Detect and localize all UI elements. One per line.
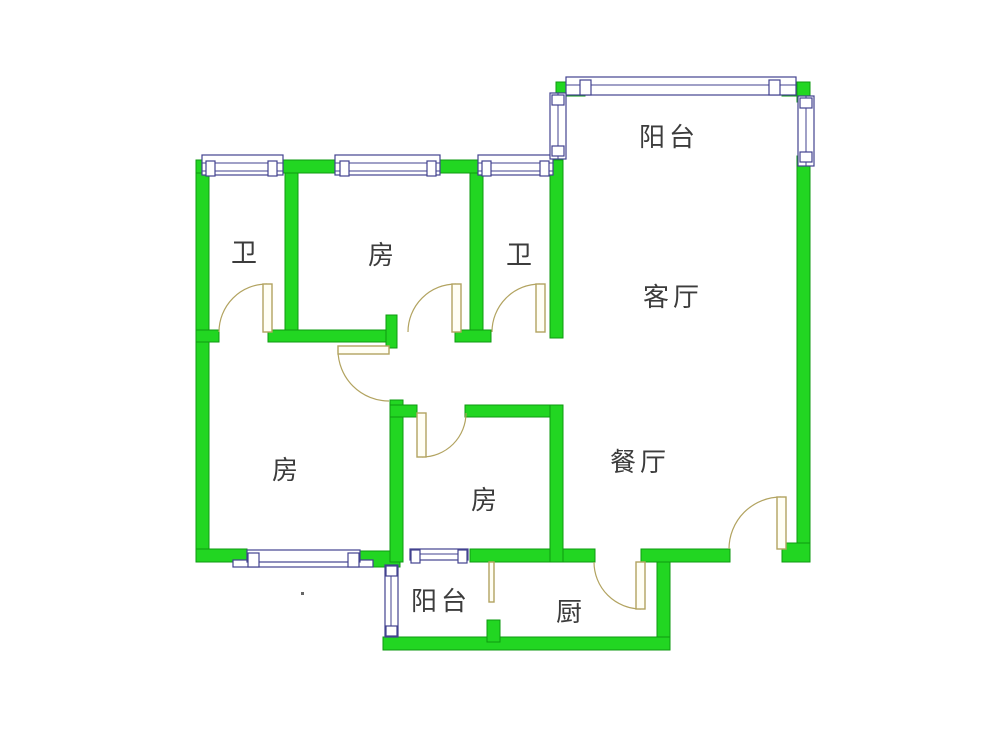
wall-midroom-right (550, 405, 563, 562)
wall-hall-segment-b (268, 330, 397, 342)
window-bottom-balcony-cap-bottom (386, 626, 397, 636)
wall-hall-end-cap (386, 315, 397, 348)
wall-right-outer (797, 156, 810, 549)
door-dining-arc (729, 497, 781, 549)
window-midroom-balcony-cap-left (411, 550, 420, 563)
window-balcony-top-cap-left (580, 80, 591, 95)
floor-plan-drawing: 卫 房 卫 阳台 客厅 房 房 餐厅 阳台 厨 (0, 0, 1000, 731)
door-bedroom-left-leaf (338, 346, 389, 354)
door-dining-leaf (777, 497, 786, 549)
wall-hall-segment-a (196, 330, 219, 342)
room-label-bedroom-top: 房 (368, 241, 394, 271)
room-label-bath-1: 卫 (231, 239, 257, 269)
window-balcony-right-cap-bottom (800, 152, 812, 162)
window-balcony-left-cap-bottom (552, 146, 564, 156)
door-bedroom-middle-leaf (417, 413, 426, 457)
window-balcony-right-cap-top (800, 98, 812, 108)
wall-balcony-kitchen-divider-stub (487, 620, 500, 642)
door-bedroom-top-leaf (452, 284, 461, 332)
window-balcony-top (566, 77, 796, 95)
room-label-dining-room: 餐厅 (610, 448, 670, 478)
wall-divider-bedroom-bath2 (470, 173, 483, 332)
wall-midroom-top-a (390, 405, 417, 417)
door-bedroom-top-arc (408, 284, 456, 332)
door-kitchen-arc (594, 562, 641, 609)
door-bedroom-middle-arc (422, 413, 466, 457)
window-top-2-cap-right (427, 161, 436, 176)
room-label-balcony-bottom: 阳台 (411, 587, 471, 617)
wall-bottom-segment-c (470, 549, 595, 562)
speck (301, 592, 304, 595)
door-bedroom-left-arc (338, 350, 389, 401)
wall-bottom-balcony-kitchen (383, 637, 670, 650)
window-balcony-top-cap-right (769, 80, 780, 95)
room-label-living-room: 客厅 (643, 283, 703, 313)
wall-left-outer (196, 160, 209, 562)
door-bath-2-arc (492, 284, 540, 332)
window-bottom-balcony-cap-top (386, 566, 397, 576)
window-top-3-cap-right (540, 161, 549, 176)
window-bedroom-left-cap-right (348, 553, 359, 567)
room-label-kitchen: 厨 (556, 598, 582, 628)
window-balcony-left-cap-top (552, 95, 564, 105)
wall-midroom-left (390, 400, 403, 562)
door-bath-1-arc (219, 284, 267, 332)
window-top-2 (335, 155, 440, 175)
room-label-bedroom-middle: 房 (471, 486, 497, 516)
door-kitchen-leaf (636, 562, 645, 609)
partition-balcony-kitchen (489, 562, 494, 602)
window-top-1-cap-left (206, 161, 215, 176)
window-top-3-cap-left (482, 161, 491, 176)
wall-midroom-top-b (465, 405, 563, 417)
room-label-bath-2: 卫 (506, 241, 532, 271)
wall-divider-bath1-bedroom (285, 173, 298, 332)
window-bedroom-left (247, 550, 360, 562)
door-bath-2-leaf (536, 284, 545, 332)
wall-bottom-segment-d (641, 549, 730, 562)
floor-plan-page: 卫 房 卫 阳台 客厅 房 房 餐厅 阳台 厨 (0, 0, 1000, 731)
room-label-bedroom-left: 房 (272, 456, 298, 486)
wall-right-left-block (550, 160, 563, 338)
window-bedroom-left-cap-left (248, 553, 259, 567)
window-midroom-balcony-cap-right (458, 550, 467, 563)
window-top-2-cap-left (340, 161, 349, 176)
window-top-1-cap-right (268, 161, 277, 176)
room-label-balcony-top: 阳台 (639, 123, 699, 153)
door-bath-1-leaf (263, 284, 272, 332)
